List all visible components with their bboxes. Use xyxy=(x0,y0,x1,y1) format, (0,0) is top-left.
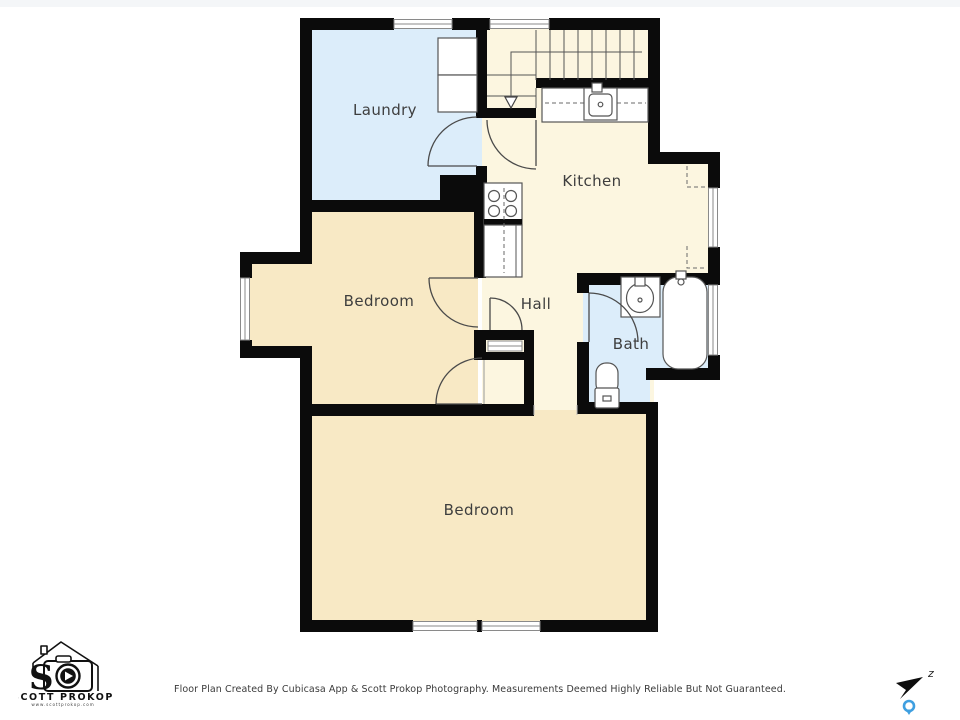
bath-window xyxy=(709,285,718,355)
dryer xyxy=(438,75,477,112)
bath-label: Bath xyxy=(613,335,649,353)
bedroom2-label: Bedroom xyxy=(444,501,515,519)
floor-plan xyxy=(0,0,960,720)
floor-plan-page: Laundry Kitchen Bedroom Hall Bath Bedroo… xyxy=(0,0,960,720)
stair-window xyxy=(490,20,549,29)
washer xyxy=(438,38,477,75)
logo-website: www.scottprokop.com xyxy=(31,702,94,707)
laundry-window xyxy=(394,20,452,29)
bedroom2-window-right xyxy=(482,622,540,631)
location-pin-icon xyxy=(904,701,914,715)
bedroom1-window xyxy=(241,278,250,340)
kitchen-counter-sink xyxy=(542,83,648,122)
footer-disclaimer: Floor Plan Created By Cubicasa App & Sco… xyxy=(0,684,960,695)
kitchen-window xyxy=(709,188,718,247)
laundry-appliances xyxy=(438,38,477,112)
kitchen-label: Kitchen xyxy=(562,172,621,190)
hall-label: Hall xyxy=(521,295,551,313)
bedroom1-label: Bedroom xyxy=(344,292,415,310)
bedroom2-window-left xyxy=(413,622,477,631)
stove xyxy=(484,183,522,225)
north-arrow-icon xyxy=(896,677,923,699)
compass: z xyxy=(884,654,950,718)
bathtub xyxy=(663,271,707,369)
toilet xyxy=(595,363,619,408)
north-label: z xyxy=(927,667,934,680)
bedroom1-bump-floor xyxy=(248,260,310,350)
laundry-label: Laundry xyxy=(353,101,417,119)
photographer-logo: S SCOTT PROKOP www.scottprokop.com xyxy=(18,636,118,710)
